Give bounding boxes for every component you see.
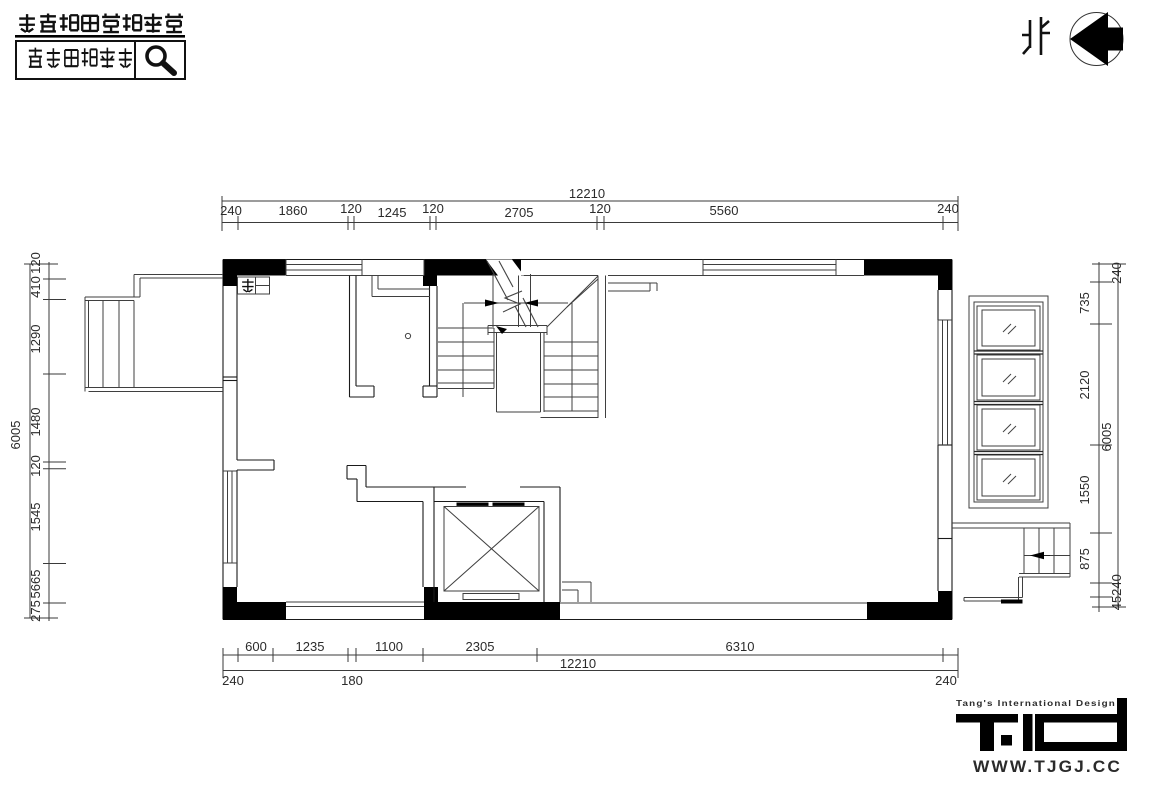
svg-text:1550: 1550 [1077,476,1092,505]
svg-text:1245: 1245 [378,205,407,220]
svg-text:Tang's International Design: Tang's International Design [956,699,1116,708]
svg-text:6005: 6005 [1099,423,1114,452]
svg-text:5560: 5560 [710,203,739,218]
svg-text:1290: 1290 [28,325,43,354]
svg-text:2120: 2120 [1077,371,1092,400]
svg-text:240: 240 [222,673,244,688]
svg-text:875: 875 [1077,548,1092,570]
svg-text:1235: 1235 [296,639,325,654]
svg-text:6310: 6310 [726,639,755,654]
svg-text:240: 240 [935,673,957,688]
svg-text:1480: 1480 [28,408,43,437]
svg-text:12210: 12210 [569,186,605,201]
svg-text:1860: 1860 [279,203,308,218]
svg-text:12210: 12210 [560,656,596,671]
svg-text:2705: 2705 [505,205,534,220]
svg-text:240: 240 [1109,574,1124,596]
svg-text:1100: 1100 [375,639,403,654]
svg-text:6005: 6005 [8,421,23,450]
svg-text:240: 240 [937,201,959,216]
svg-text:2305: 2305 [466,639,495,654]
svg-text:5665: 5665 [28,570,43,599]
svg-text:WWW.TJGJ.CC: WWW.TJGJ.CC [973,758,1122,776]
svg-text:240: 240 [220,203,242,218]
svg-text:600: 600 [245,639,267,654]
svg-text:120: 120 [28,252,43,274]
svg-text:240: 240 [1109,262,1124,284]
svg-text:120: 120 [589,201,611,216]
svg-text:275: 275 [28,600,43,622]
svg-text:735: 735 [1077,292,1092,314]
svg-text:120: 120 [28,455,43,477]
svg-text:120: 120 [422,201,444,216]
svg-text:180: 180 [341,673,363,688]
svg-text:410: 410 [28,276,43,298]
svg-text:45: 45 [1109,596,1124,610]
svg-text:120: 120 [340,201,362,216]
svg-text:1545: 1545 [28,503,43,532]
